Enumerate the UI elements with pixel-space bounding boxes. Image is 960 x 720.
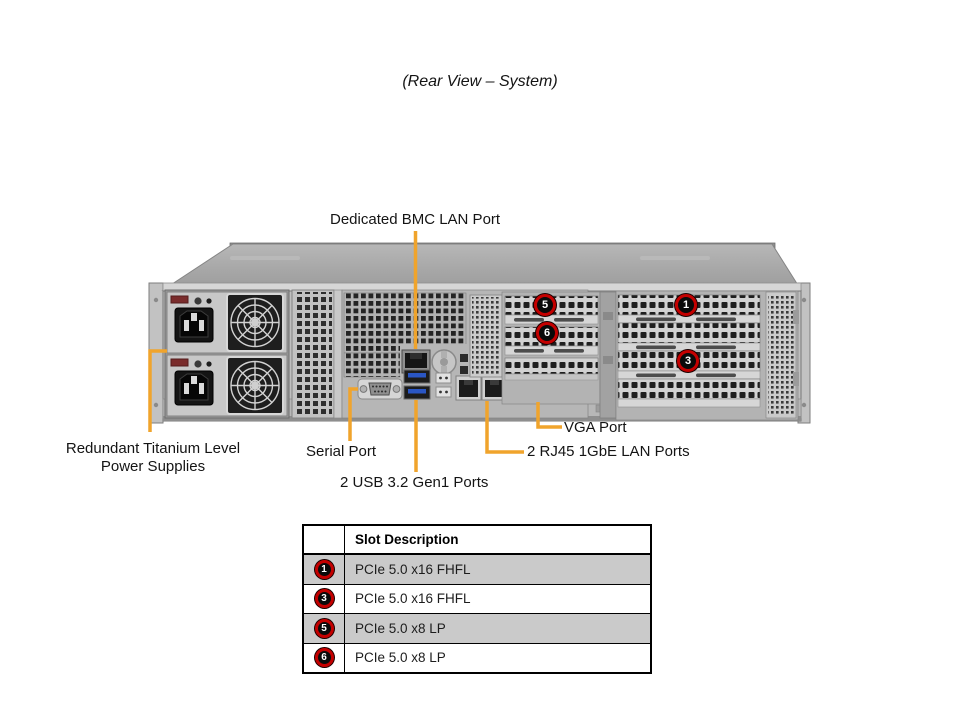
table-slot-badge-5: 5: [315, 619, 334, 638]
table-slot-badge-6-number: 6: [321, 652, 327, 663]
vent-panel: [292, 290, 342, 418]
label-lan-ports: 2 RJ45 1GbE LAN Ports: [527, 443, 690, 460]
table-description-cell: PCIe 5.0 x16 FHFL: [345, 555, 650, 584]
table-slot-cell: 6: [304, 644, 345, 673]
table-description-cell: PCIe 5.0 x8 LP: [345, 644, 650, 673]
label-usb-ports: 2 USB 3.2 Gen1 Ports: [340, 474, 488, 491]
riser-vent: [470, 295, 502, 377]
lan-ports: [456, 376, 507, 400]
slot-marker-3: 3: [677, 350, 699, 372]
table-header-row: Slot Description: [304, 526, 650, 553]
slot-marker-1-number: 1: [683, 299, 689, 311]
power-supply-top: [167, 292, 287, 353]
slot-description-table: Slot Description 1 PCIe 5.0 x16 FHFL 3 P…: [302, 524, 652, 674]
table-description-cell: PCIe 5.0 x8 LP: [345, 614, 650, 643]
side-mesh: [766, 292, 799, 418]
id-led: [460, 354, 468, 362]
table-slot-cell: 1: [304, 555, 345, 584]
slot-divider-bracket: [600, 292, 616, 418]
slot-marker-3-number: 3: [685, 355, 691, 367]
table-row: 5 PCIe 5.0 x8 LP: [304, 613, 650, 643]
table-row: 1 PCIe 5.0 x16 FHFL: [304, 553, 650, 584]
table-slot-cell: 5: [304, 614, 345, 643]
page: (Rear View – System): [0, 0, 960, 720]
slot-marker-5-number: 5: [542, 299, 548, 311]
power-supply-bay: [165, 290, 289, 418]
label-bmc-lan-port: Dedicated BMC LAN Port: [330, 211, 500, 228]
table-slot-badge-1-number: 1: [321, 564, 327, 575]
slot-marker-5: 5: [534, 294, 556, 316]
label-power-supplies: Redundant Titanium Level Power Supplies: [57, 440, 249, 476]
slot-marker-6-number: 6: [544, 327, 550, 339]
table-slot-badge-3-number: 3: [321, 593, 327, 604]
label-serial-port: Serial Port: [306, 443, 376, 460]
table-slot-cell: 3: [304, 585, 345, 614]
fh-slot-area: [616, 291, 799, 420]
table-slot-badge-6: 6: [315, 648, 334, 667]
chassis-top-lid: [163, 243, 801, 291]
slot-marker-6: 6: [536, 322, 558, 344]
table-header-description: Slot Description: [345, 526, 650, 553]
table-slot-badge-1: 1: [315, 560, 334, 579]
slot-marker-1: 1: [675, 294, 697, 316]
knockout-circle: [432, 350, 456, 374]
table-slot-badge-3: 3: [315, 589, 334, 608]
table-row: 3 PCIe 5.0 x16 FHFL: [304, 584, 650, 614]
table-row: 6 PCIe 5.0 x8 LP: [304, 643, 650, 673]
label-vga-port: VGA Port: [564, 419, 627, 436]
power-supply-bottom: [167, 355, 287, 416]
serial-port: [358, 379, 402, 399]
table-header-slot-cell: [304, 526, 345, 553]
table-description-cell: PCIe 5.0 x16 FHFL: [345, 585, 650, 614]
table-slot-badge-5-number: 5: [321, 623, 327, 634]
nmi-button: [460, 366, 468, 374]
